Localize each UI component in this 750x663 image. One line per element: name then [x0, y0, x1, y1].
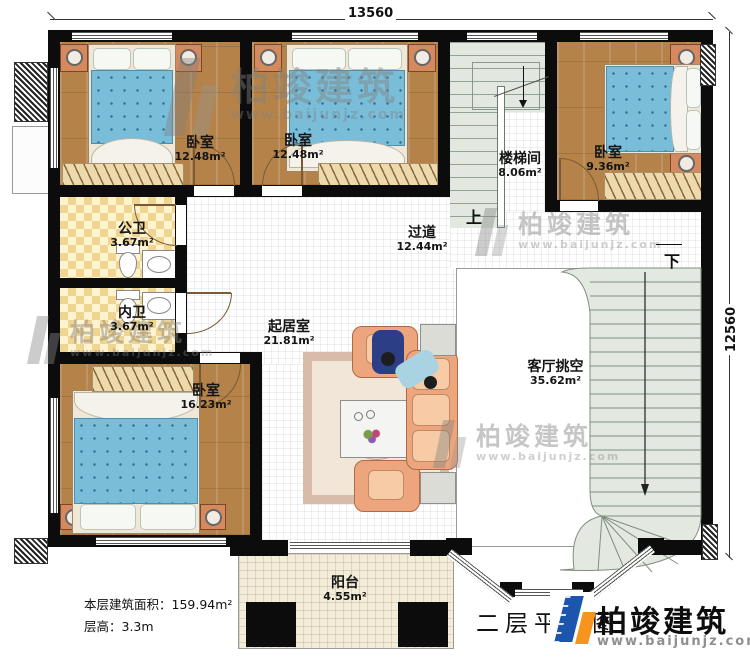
- nightstand: [408, 44, 436, 72]
- door-gap-bedroom1: [194, 186, 234, 196]
- door-leaf-bedroom3: [559, 158, 561, 200]
- brand-url: www.baijunjz.com: [597, 634, 750, 649]
- room-name: 卧室: [566, 146, 650, 161]
- table-cup: [354, 412, 363, 421]
- sofa-cushion: [412, 430, 450, 462]
- room-label-living-void: 客厅挑空 35.62m²: [498, 360, 613, 387]
- wall-bedrooms-bottom: [60, 185, 450, 197]
- door-gap-bedroom4: [200, 353, 240, 363]
- stair-arrowhead: [519, 100, 527, 108]
- pillow: [348, 48, 402, 70]
- person-sitting-head: [381, 352, 395, 366]
- sink-basin: [147, 256, 171, 273]
- window-bedroom4-bottom: [96, 537, 226, 545]
- stair-landing-outline: [472, 62, 540, 110]
- window-bedroom1-top: [72, 32, 172, 40]
- bed-quilt: [74, 418, 198, 504]
- sofa-cushion: [412, 394, 450, 426]
- room-name: 卧室: [165, 384, 247, 399]
- room-name: 起居室: [246, 320, 332, 335]
- room-area: 35.62m²: [498, 375, 613, 387]
- hatch-top-right: [700, 44, 716, 86]
- bed-quilt: [91, 70, 173, 144]
- stair-arrow-line: [523, 66, 524, 102]
- room-area: 12.44m²: [382, 241, 462, 253]
- lamp-icon: [180, 49, 197, 66]
- balcony-pillar-right: [398, 602, 448, 647]
- bed-quilt: [606, 66, 674, 152]
- ac-ledge: [12, 126, 50, 194]
- wall-balcony-left-pier: [230, 540, 288, 556]
- balcony-sliding-door: [290, 542, 410, 551]
- table-cup: [366, 410, 375, 419]
- side-table: [420, 472, 456, 504]
- room-name: 卧室: [256, 134, 340, 149]
- floor-area-text: 本层建筑面积：159.94m²: [84, 594, 232, 613]
- bay-connector: [658, 540, 704, 555]
- door-gap-bedroom2: [262, 186, 302, 196]
- pillow: [93, 48, 131, 70]
- floor-plan: 上 下: [0, 0, 750, 663]
- door-gap-public-bath: [176, 205, 186, 245]
- wall-bed2-stair: [438, 42, 450, 185]
- armchair-cushion: [368, 470, 404, 500]
- person-lounging-head: [424, 376, 437, 389]
- room-area: 12.48m²: [158, 151, 242, 163]
- window-stair-top: [467, 32, 537, 40]
- room-name: 客厅挑空: [498, 360, 613, 375]
- lamp-icon: [678, 155, 695, 172]
- room-label-bedroom-top-right: 卧室 9.36m²: [566, 146, 650, 173]
- room-name: 卧室: [158, 136, 242, 151]
- room-area: 4.55m²: [310, 591, 380, 603]
- door-leaf-private-bath: [187, 292, 231, 294]
- room-label-balcony: 阳台 4.55m²: [310, 576, 380, 603]
- hatch-bottom-left: [14, 538, 48, 564]
- pillow: [686, 68, 701, 108]
- wall-bed1-bed2: [240, 42, 252, 185]
- floor-height-text: 层高：3.3m: [84, 616, 154, 635]
- room-label-bedroom-top-left: 卧室 12.48m²: [158, 136, 242, 163]
- room-label-sitting-room: 起居室 21.81m²: [246, 320, 332, 347]
- window-bedroom2-top: [292, 32, 418, 40]
- wall-stair-right: [545, 42, 557, 212]
- lamp-icon: [414, 49, 431, 66]
- dimension-top-value: 13560: [345, 6, 396, 21]
- stair-down-label: 下: [664, 248, 680, 272]
- brand-logo-icon: [550, 592, 594, 646]
- bay-window-left: [446, 549, 513, 604]
- wall-bed4-right: [250, 364, 262, 547]
- wall-bath-divider: [60, 278, 175, 288]
- pillow: [80, 504, 136, 530]
- room-area: 16.23m²: [165, 399, 247, 411]
- pillow: [686, 110, 701, 150]
- room-area: 21.81m²: [246, 335, 332, 347]
- door-gap-private-bath: [176, 293, 186, 333]
- curved-stair: [540, 258, 718, 578]
- pillow: [140, 504, 196, 530]
- pillow: [133, 48, 171, 70]
- dimension-right-value: 12560: [724, 304, 739, 355]
- room-name: 过道: [382, 226, 462, 241]
- room-area: 3.67m²: [96, 321, 168, 333]
- table-flowers: [362, 428, 382, 444]
- lamp-icon: [66, 49, 83, 66]
- wardrobe: [604, 172, 702, 200]
- window-bedroom3-top: [580, 32, 668, 40]
- hatch-bottom-right: [702, 524, 718, 560]
- wardrobe: [62, 163, 184, 186]
- room-area: 12.48m²: [256, 149, 340, 161]
- nightstand: [254, 44, 282, 72]
- room-area: 9.36m²: [566, 161, 650, 173]
- room-label-bedroom-bottom: 卧室 16.23m²: [165, 384, 247, 411]
- wardrobe: [318, 163, 438, 186]
- nightstand: [200, 504, 226, 530]
- room-label-public-bathroom: 公卫 3.67m²: [96, 222, 168, 249]
- room-label-bedroom-top-mid: 卧室 12.48m²: [256, 134, 340, 161]
- stair-up-label: 上: [466, 204, 482, 228]
- room-label-hallway: 过道 12.44m²: [382, 226, 462, 253]
- room-name: 楼梯间: [482, 152, 558, 167]
- door-gap-bedroom3: [560, 201, 598, 211]
- hatch-top-left: [14, 62, 48, 122]
- room-label-stairwell: 楼梯间 8.06m²: [482, 152, 558, 179]
- room-name: 阳台: [310, 576, 380, 591]
- room-name: 公卫: [96, 222, 168, 237]
- door-leaf-public-bath: [134, 204, 176, 206]
- nightstand: [174, 44, 202, 72]
- room-label-private-bathroom: 内卫 3.67m²: [96, 306, 168, 333]
- lamp-icon: [260, 49, 277, 66]
- room-name: 内卫: [96, 306, 168, 321]
- window-bedroom4-left: [50, 398, 58, 513]
- nightstand: [60, 44, 88, 72]
- balcony-pillar-left: [246, 602, 296, 647]
- stair-down-tick: [656, 244, 682, 245]
- room-area: 8.06m²: [482, 167, 558, 179]
- dimension-line-right: [729, 32, 730, 558]
- window-bedroom1-left: [50, 68, 58, 168]
- pillow: [292, 48, 346, 70]
- room-area: 3.67m²: [96, 237, 168, 249]
- lamp-icon: [205, 509, 222, 526]
